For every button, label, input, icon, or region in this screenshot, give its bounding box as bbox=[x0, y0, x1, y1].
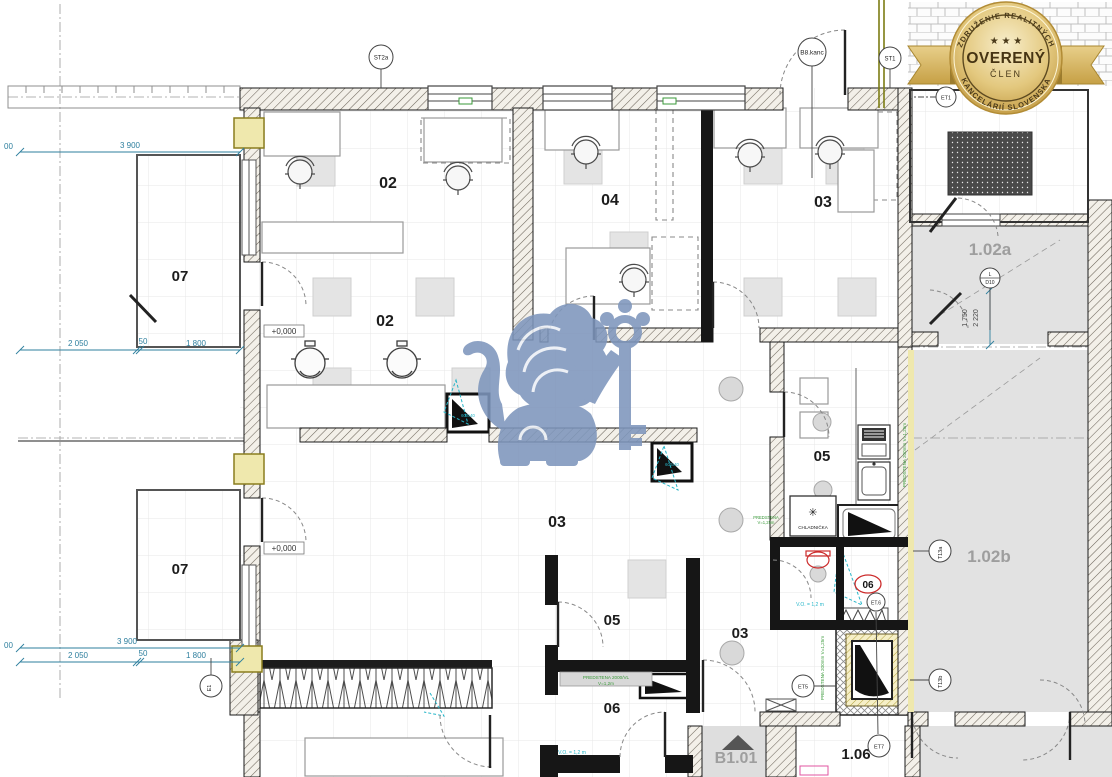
note-partition-c2: PREDSTENA 200mm V=1,25m bbox=[820, 636, 825, 700]
note-clear-height-1: V.O. = 1,2 m bbox=[796, 602, 824, 608]
dim-50-bottom: 50 bbox=[139, 649, 148, 658]
marker-et5: ET5 bbox=[798, 685, 808, 691]
room-label-03-main: 03 bbox=[548, 514, 566, 531]
dim-2050-bottom: 2 050 bbox=[68, 651, 89, 660]
room-label-02-top: 02 bbox=[379, 175, 397, 192]
room-label-05-kitchen: 05 bbox=[814, 448, 831, 465]
note-partition-b2: V=1,25m bbox=[758, 520, 775, 525]
room-label-03-lower: 03 bbox=[732, 625, 749, 642]
dim-edge-top: 00 bbox=[4, 142, 13, 151]
badge-stars: ★ ★ ★ bbox=[990, 36, 1022, 47]
room-label-07-upper: 07 bbox=[172, 268, 189, 285]
level-mark-lower: +0,000 bbox=[272, 544, 297, 553]
room-label-b101: B1.01 bbox=[715, 750, 758, 767]
wc-red-tag: 06 bbox=[855, 575, 881, 593]
note-partition-c1: PREDSTENA 200mm V=1,25m bbox=[902, 423, 907, 487]
wardrobe-unit bbox=[260, 660, 492, 708]
yellow-wall-liner bbox=[908, 350, 914, 712]
marker-t13b: T13b bbox=[938, 676, 944, 689]
dim-edge-bottom: 00 bbox=[4, 641, 13, 650]
note-niche-2: 600x40 bbox=[665, 462, 679, 467]
marker-et6: ET.6 bbox=[871, 601, 881, 607]
marker-d10-bottom: D10 bbox=[985, 280, 994, 286]
room-label-02-lower: 02 bbox=[376, 313, 394, 330]
dim-3900-bottom: 3 900 bbox=[117, 637, 138, 646]
floor-plan-page: ✳ CHLADNIČKA bbox=[0, 0, 1112, 777]
fridge-label: CHLADNIČKA bbox=[798, 524, 829, 530]
badge-title: OVERENÝ bbox=[966, 49, 1045, 67]
room-label-106: 1.06 bbox=[841, 746, 870, 763]
marker-et1: ET1 bbox=[941, 96, 951, 102]
dim-3900-top: 3 900 bbox=[120, 141, 141, 150]
dim-2220: 2 220 bbox=[973, 309, 980, 327]
marker-st1: ST1 bbox=[884, 57, 896, 63]
note-clear-height-2: V.O. = 1,2 m bbox=[558, 750, 586, 756]
marker-e1: E1 bbox=[207, 685, 213, 692]
marker-st2a: ST2a bbox=[374, 56, 389, 62]
room-label-06: 06 bbox=[604, 700, 621, 717]
note-partition-a1: PREDSTENA 2000/VL bbox=[583, 675, 630, 680]
dark-shaft-block bbox=[948, 132, 1032, 195]
note-partition-a2: V=1,2m bbox=[598, 681, 614, 686]
room-label-04: 04 bbox=[601, 192, 619, 209]
marker-b8kanc: B8.kanc bbox=[800, 50, 824, 57]
dim-1800-bottom: 1 800 bbox=[186, 651, 207, 660]
room-label-05-small: 05 bbox=[604, 612, 621, 629]
badge-subtitle: ČLEN bbox=[990, 69, 1022, 79]
fridge-icon: ✳ bbox=[808, 507, 817, 519]
room-label-07-lower: 07 bbox=[172, 561, 189, 578]
dim-1750: 1 750 bbox=[962, 309, 969, 327]
wc-tag-number: 06 bbox=[862, 580, 874, 591]
marker-et7: ET7 bbox=[874, 745, 884, 751]
sink bbox=[858, 462, 890, 500]
dim-50-top: 50 bbox=[139, 337, 148, 346]
room-label-102b: 1.02b bbox=[967, 547, 1010, 566]
marker-t13a: T13a bbox=[938, 546, 944, 559]
floor-plan-drawing: ✳ CHLADNIČKA bbox=[0, 0, 1112, 777]
room-label-102a: 1.02a bbox=[969, 240, 1012, 259]
dim-1800-top: 1 800 bbox=[186, 339, 207, 348]
dim-2050-top: 2 050 bbox=[68, 339, 89, 348]
level-mark-upper: +0,000 bbox=[272, 327, 297, 336]
marker-d10-top: L bbox=[989, 272, 992, 278]
note-niche-1: 600x40 bbox=[461, 413, 475, 418]
room-label-03-top: 03 bbox=[814, 194, 832, 211]
